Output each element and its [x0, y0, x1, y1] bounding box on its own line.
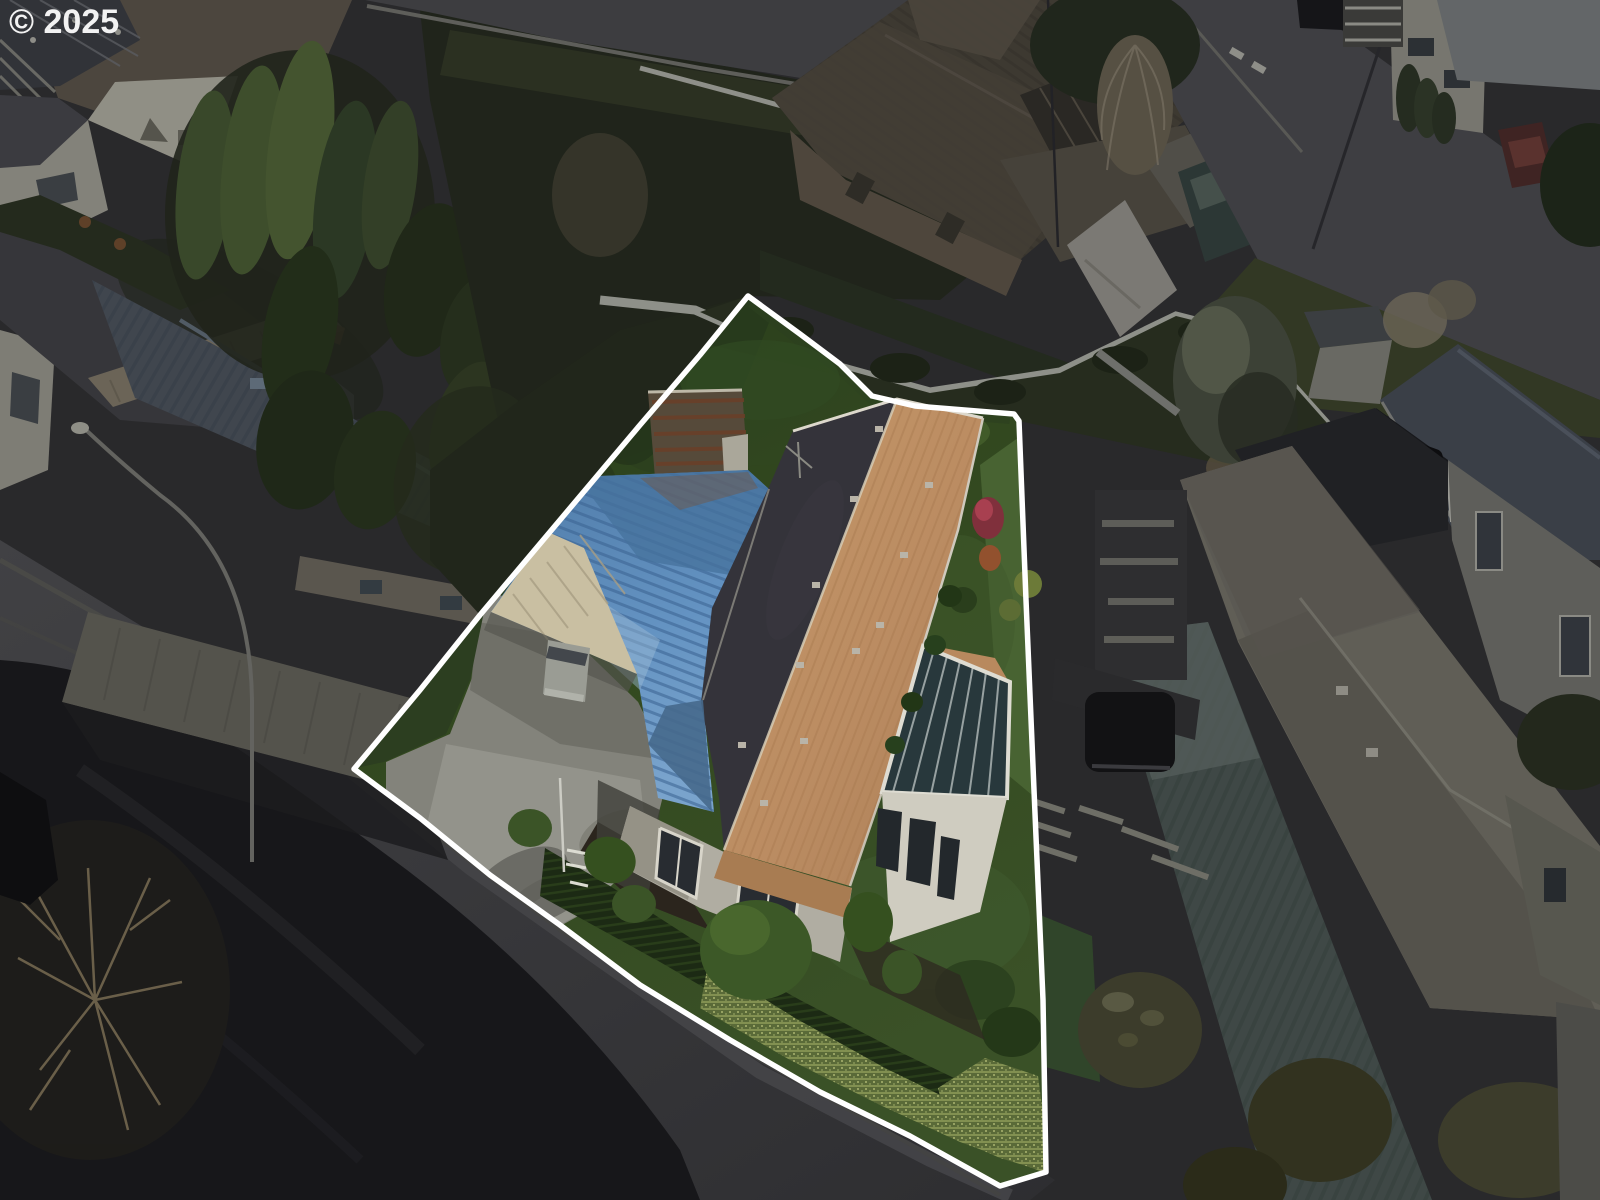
svg-text:© 2025: © 2025	[9, 3, 119, 41]
